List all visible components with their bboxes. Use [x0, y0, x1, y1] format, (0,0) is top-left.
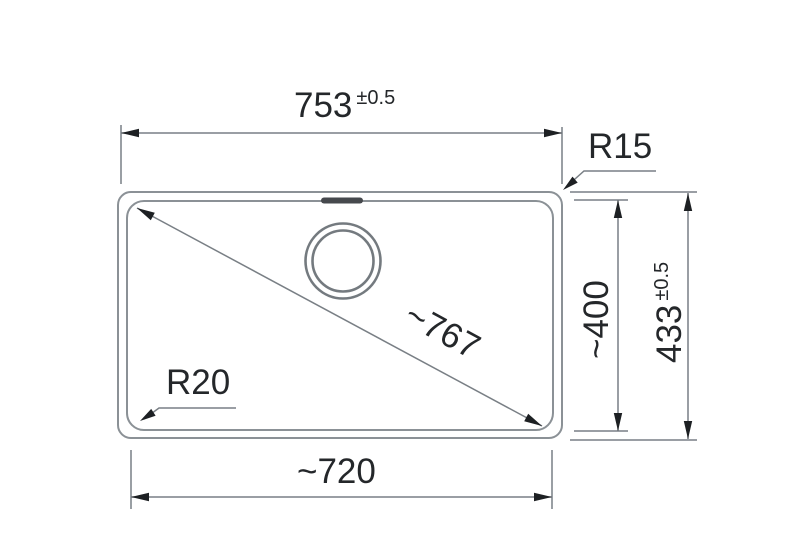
dimension-inner-width: ~720 — [131, 450, 552, 509]
arrowhead-left — [131, 493, 149, 501]
dimension-label-inner-width: ~720 — [297, 452, 376, 491]
dimension-label-inner-height: ~400 — [577, 280, 616, 359]
dimension-label-outer-width: 753±0.5 — [294, 86, 395, 125]
arrowhead-bottom-right — [524, 414, 542, 426]
dimension-outer-width: 753±0.5 — [121, 86, 562, 184]
arrowhead-left — [121, 129, 139, 137]
arrowhead-right — [534, 493, 552, 501]
drain-hole-inner-circle — [313, 231, 374, 292]
arrowhead — [140, 409, 156, 421]
callout-outer-corner-radius: R15 — [563, 127, 656, 190]
arrowhead-right — [544, 129, 562, 137]
radius-label-r15: R15 — [588, 127, 652, 166]
arrowhead-top — [614, 200, 622, 218]
dimension-label-outer-height: 433±0.5 — [650, 262, 689, 363]
arrowhead-top-left — [137, 208, 155, 220]
drawing-svg: 753±0.5 R15 ~400 433±0.5 ~767 R20 — [0, 0, 800, 544]
arrowhead-top — [684, 193, 692, 211]
leader-line — [566, 171, 656, 187]
dimension-inner-height: ~400 — [574, 200, 628, 431]
radius-label-r20: R20 — [166, 363, 230, 402]
leader-line — [144, 408, 236, 419]
arrowhead-bottom — [684, 421, 692, 439]
drain-hole-outer-circle — [306, 224, 381, 299]
arrowhead-bottom — [614, 413, 622, 431]
sink-dimension-drawing: 753±0.5 R15 ~400 433±0.5 ~767 R20 — [0, 0, 800, 544]
callout-inner-corner-radius: R20 — [140, 363, 236, 421]
overflow-slot — [321, 198, 363, 204]
